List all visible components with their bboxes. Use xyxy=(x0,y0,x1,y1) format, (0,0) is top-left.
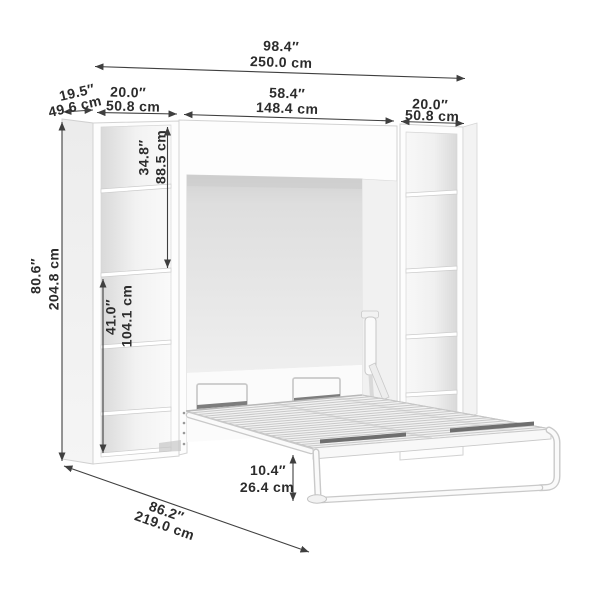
bed-frame xyxy=(159,395,557,503)
wall-bed-with-bookcases xyxy=(62,119,557,503)
diagram-canvas: 98.4″ 250.0 cm 19.5″ 49.6 cm 20.0″ 50.8 … xyxy=(0,0,600,600)
upper-section-in: 34.8″ xyxy=(136,140,152,176)
dim-overall-width: 98.4″ 250.0 cm xyxy=(95,37,465,78)
front-left-leg-inner xyxy=(316,452,318,496)
overall-height-in: 80.6″ xyxy=(28,258,44,294)
piston-rod xyxy=(371,375,373,398)
leg-foot-pad xyxy=(308,495,327,503)
overall-width-in: 98.4″ xyxy=(263,37,299,54)
upper-section-cm: 88.5 cm xyxy=(153,130,169,184)
frame-height-in: 10.4″ xyxy=(250,462,286,478)
overall-width-cm: 250.0 cm xyxy=(250,53,313,71)
overall-height-cm: 204.8 cm xyxy=(46,248,62,310)
left-width-cm: 50.8 cm xyxy=(106,97,161,114)
dim-right-unit-width: 20.0″ 50.8 cm xyxy=(401,95,464,124)
frame-height-cm: 26.4 cm xyxy=(240,479,294,495)
dim-side-depth: 19.5″ 49.6 cm xyxy=(47,80,103,120)
lower-section-cm: 104.1 cm xyxy=(119,285,135,347)
dim-bed-unit-width: 58.4″ 148.4 cm xyxy=(184,84,394,121)
dim-bed-frame-height: 10.4″ 26.4 cm xyxy=(240,455,294,501)
right-width-cm: 50.8 cm xyxy=(405,107,460,125)
product-dimension-diagram: 98.4″ 250.0 cm 19.5″ 49.6 cm 20.0″ 50.8 … xyxy=(0,0,600,600)
lower-section-in: 41.0″ xyxy=(103,299,119,335)
right-interior xyxy=(406,132,457,449)
right-side-panel xyxy=(463,123,477,418)
bottom-bar-inner xyxy=(322,488,540,500)
left-side-panel xyxy=(62,119,93,464)
cabinet-back-panel xyxy=(187,175,362,373)
dim-left-unit-width: 20.0″ 50.8 cm xyxy=(97,84,177,115)
bed-width-cm: 148.4 cm xyxy=(256,99,319,117)
dim-overall-height: 80.6″ 204.8 cm xyxy=(28,122,63,461)
